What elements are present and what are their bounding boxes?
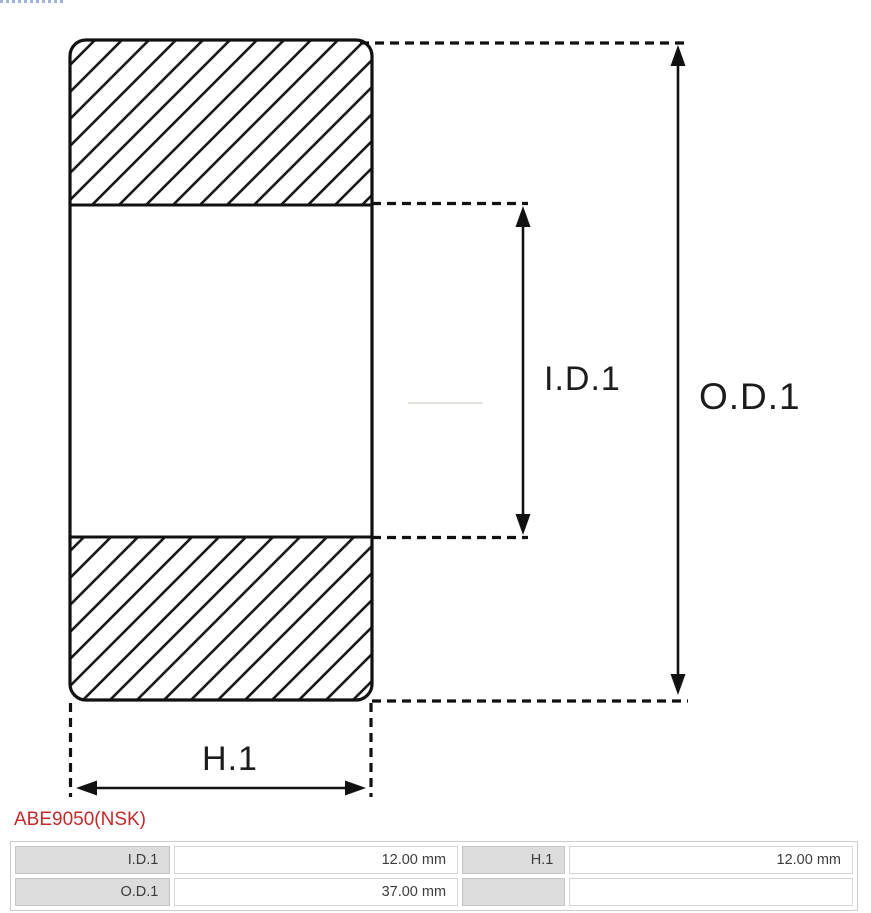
od1-arrowhead-down bbox=[671, 674, 686, 695]
spec-label-h1: H.1 bbox=[462, 846, 565, 874]
spec-table: I.D.1 12.00 mm H.1 12.00 mm O.D.1 37.00 … bbox=[10, 841, 858, 911]
h1-arrowhead-left bbox=[76, 781, 97, 796]
spec-value-od1: 37.00 mm bbox=[174, 878, 458, 906]
spec-label-empty bbox=[462, 878, 565, 906]
od1-label: O.D.1 bbox=[699, 376, 801, 418]
spec-label-id1: I.D.1 bbox=[15, 846, 170, 874]
outer-race-top-hatch bbox=[70, 40, 372, 205]
id1-label: I.D.1 bbox=[544, 360, 621, 399]
table-row: O.D.1 37.00 mm bbox=[15, 878, 853, 906]
spec-label-od1: O.D.1 bbox=[15, 878, 170, 906]
od1-dimension-arrow bbox=[671, 45, 686, 695]
spec-value-h1: 12.00 mm bbox=[569, 846, 853, 874]
h1-arrowhead-right bbox=[345, 781, 366, 796]
h1-label: H.1 bbox=[190, 740, 270, 779]
id1-dimension-arrow bbox=[516, 206, 531, 535]
part-number: ABE9050(NSK) bbox=[14, 809, 146, 831]
id1-arrowhead-up bbox=[516, 206, 531, 227]
bearing-hatched-races bbox=[70, 40, 372, 700]
product-dimensions-panel: I.D.1 O.D.1 H.1 ABE9050(NSK) I.D.1 12.00… bbox=[0, 0, 871, 913]
spec-value-id1: 12.00 mm bbox=[174, 846, 458, 874]
id1-arrowhead-down bbox=[516, 514, 531, 535]
h1-dimension-arrow bbox=[76, 781, 366, 796]
spec-value-empty bbox=[569, 878, 853, 906]
table-row: I.D.1 12.00 mm H.1 12.00 mm bbox=[15, 846, 853, 874]
outer-race-bottom-hatch bbox=[70, 537, 372, 700]
od1-arrowhead-up bbox=[671, 45, 686, 66]
